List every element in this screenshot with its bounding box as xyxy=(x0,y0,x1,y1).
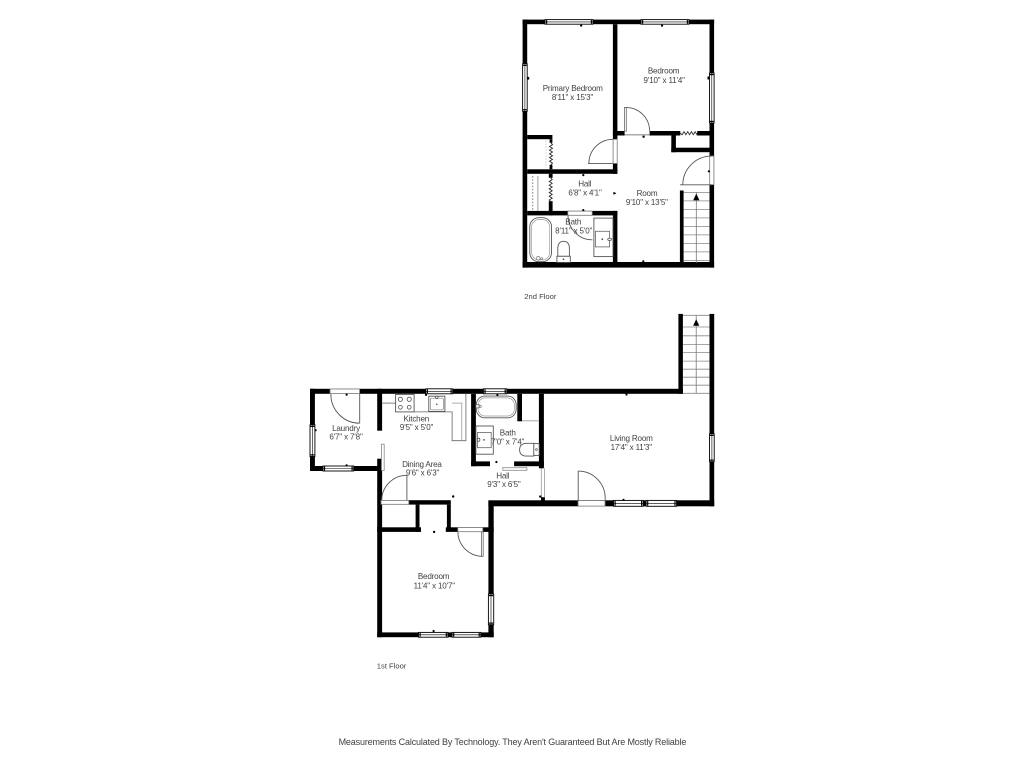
svg-text:Bedroom: Bedroom xyxy=(648,66,680,75)
svg-text:9'6" x 6'3": 9'6" x 6'3" xyxy=(406,469,440,478)
svg-text:17'4" x 11'3": 17'4" x 11'3" xyxy=(611,443,653,452)
svg-text:8'11" x 15'3": 8'11" x 15'3" xyxy=(552,93,594,102)
svg-text:Laundry: Laundry xyxy=(332,424,361,433)
svg-text:Primary Bedroom: Primary Bedroom xyxy=(543,84,603,93)
svg-text:7'0" x 7'4": 7'0" x 7'4" xyxy=(491,438,525,447)
svg-text:6'8" x 4'1": 6'8" x 4'1" xyxy=(568,189,602,198)
svg-text:9'5" x 5'0": 9'5" x 5'0" xyxy=(400,423,434,432)
svg-text:6'7" x 7'8": 6'7" x 7'8" xyxy=(329,433,363,442)
svg-text:Dining Area: Dining Area xyxy=(402,460,442,469)
svg-text:Bath: Bath xyxy=(500,429,516,438)
svg-text:Measurements Calculated By Tec: Measurements Calculated By Technology. T… xyxy=(339,737,687,747)
svg-text:2nd Floor: 2nd Floor xyxy=(524,292,557,301)
svg-text:9'3" x 6'5": 9'3" x 6'5" xyxy=(487,480,521,489)
svg-text:9'10" x 13'5": 9'10" x 13'5" xyxy=(626,198,668,207)
svg-text:1st Floor: 1st Floor xyxy=(377,662,407,671)
svg-text:9'10" x 11'4": 9'10" x 11'4" xyxy=(644,76,686,85)
svg-text:Kitchen: Kitchen xyxy=(403,414,429,423)
svg-text:11'4" x 10'7": 11'4" x 10'7" xyxy=(414,581,456,590)
svg-text:Bath: Bath xyxy=(565,217,581,226)
svg-text:Bedroom: Bedroom xyxy=(418,572,450,581)
svg-text:8'11" x 5'0": 8'11" x 5'0" xyxy=(555,226,592,235)
svg-text:Hall: Hall xyxy=(578,179,592,188)
svg-text:Room: Room xyxy=(637,189,658,198)
